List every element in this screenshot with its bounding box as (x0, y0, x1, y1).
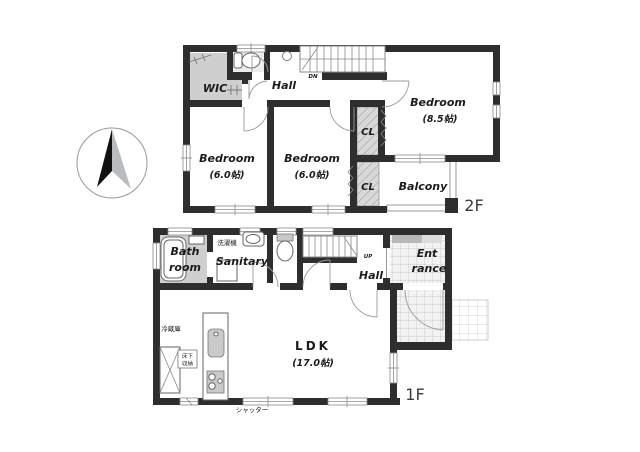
label-closet-lower: CL (361, 182, 375, 193)
label-bedroom-center: Bedroom (284, 152, 340, 165)
washbasin-icon (243, 232, 264, 246)
label-underfloor-line1: 床下 (182, 352, 194, 360)
label-balcony: Balcony (399, 180, 448, 193)
label-stairs-up: UP (364, 254, 373, 260)
floor-1f: Bath room 洗濯機 Sanitary Hall UP Ent rance… (153, 228, 488, 414)
label-refrigerator: 冷蔵庫 (161, 324, 181, 333)
toilet-icon-2f (234, 53, 260, 68)
label-bedroom-center-size: (6.0帖) (294, 169, 329, 181)
label-bedroom-left: Bedroom (199, 152, 255, 165)
label-bathroom-line1: Bath (171, 245, 200, 258)
label-entrance-line2: rance (412, 262, 447, 275)
window (328, 396, 367, 407)
label-closet-upper: CL (361, 127, 375, 138)
floor-2f: WIC Hall DN Bedroom (8.5帖) Bedroom (6.0帖… (181, 43, 500, 215)
floor-plan-page: WIC Hall DN Bedroom (8.5帖) Bedroom (6.0帖… (0, 0, 640, 452)
toilet-icon-1f (277, 234, 293, 261)
label-floor-2f: 2F (464, 196, 483, 215)
label-bedroom-main: Bedroom (410, 96, 466, 109)
label-floor-1f: 1F (405, 385, 424, 404)
underfloor-storage-label-box: 床下 収納 (178, 350, 197, 368)
hall-round-window (283, 52, 292, 61)
label-hall-2f: Hall (272, 79, 296, 92)
outside-step-tiles (452, 300, 488, 340)
label-stairs-dn: DN (308, 74, 318, 80)
window (168, 228, 192, 235)
label-sanitary: Sanitary (216, 255, 269, 268)
window-kitchen-door (180, 398, 198, 405)
label-ldk-size: (17.0帖) (292, 357, 334, 369)
window (493, 105, 500, 118)
window (215, 204, 255, 215)
stairs-1f (303, 236, 357, 257)
label-bedroom-left-size: (6.0帖) (209, 169, 244, 181)
window (303, 228, 333, 235)
window-balcony-door (395, 153, 445, 164)
underfloor-storage-hatch (160, 347, 180, 393)
window (153, 243, 160, 269)
window (493, 82, 500, 95)
label-entrance-line1: Ent (417, 247, 438, 260)
floor-plan-drawing: WIC Hall DN Bedroom (8.5帖) Bedroom (6.0帖… (0, 0, 640, 452)
label-underfloor-line2: 収納 (182, 360, 194, 368)
window (312, 204, 345, 215)
compass-north-arrow (77, 128, 147, 198)
window (237, 43, 265, 54)
label-hall-1f: Hall (359, 269, 383, 282)
kitchen-counter (203, 313, 228, 400)
window (388, 353, 399, 383)
label-shutter: シャッター (236, 405, 269, 414)
window (181, 145, 192, 171)
label-wic: WIC (203, 82, 227, 95)
compass-black-wing (97, 129, 112, 187)
label-bathroom-line2: room (169, 261, 201, 274)
porch-tile-floor (397, 290, 445, 342)
label-ldk: LDK (295, 339, 331, 353)
label-washing-machine: 洗濯機 (217, 238, 237, 247)
stairs-2f (300, 46, 385, 72)
compass-gray-wing (112, 129, 131, 189)
label-bedroom-main-size: (8.5帖) (422, 113, 457, 125)
